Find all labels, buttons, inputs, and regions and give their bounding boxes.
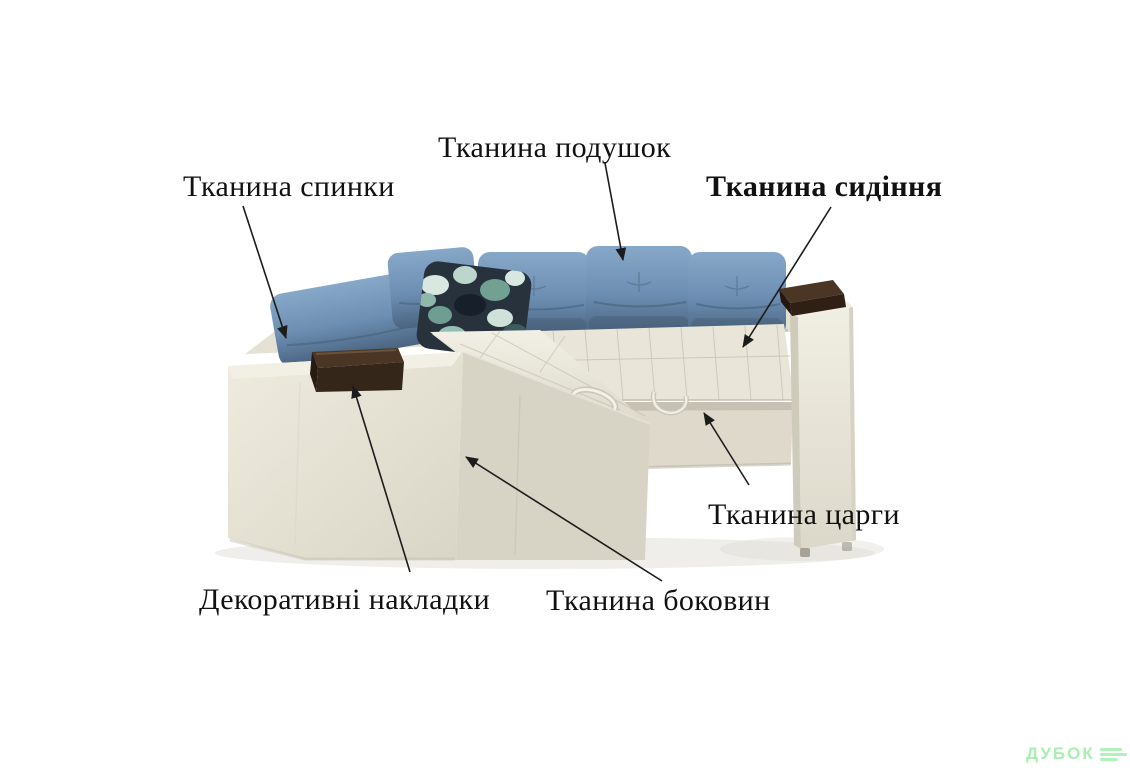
back-cushion-3 [688, 252, 786, 336]
label-back-fabric: Тканина спинки [183, 171, 395, 202]
left-armrest [228, 348, 463, 560]
arrow-back-fabric [243, 206, 286, 338]
watermark-logo: ДУБОК [1026, 744, 1095, 764]
label-decorative-overlays: Декоративні накладки [199, 584, 490, 615]
watermark-tagline-lines [1100, 748, 1127, 761]
label-seat-fabric: Тканина сидіння [706, 171, 942, 202]
label-side-fabric: Тканина боковин [546, 585, 771, 616]
sofa-illustration [0, 0, 1130, 773]
label-cushion-fabric: Тканина подушок [438, 132, 671, 163]
arrow-cushion-fabric [605, 163, 623, 260]
back-cushion-2 [586, 246, 692, 334]
annotated-sofa-diagram: Тканина подушок Тканина спинки Тканина с… [0, 0, 1130, 773]
watermark: ДУБОК [1026, 744, 1127, 764]
label-frame-fabric: Тканина царги [708, 499, 900, 530]
wood-pad-left [310, 348, 404, 392]
